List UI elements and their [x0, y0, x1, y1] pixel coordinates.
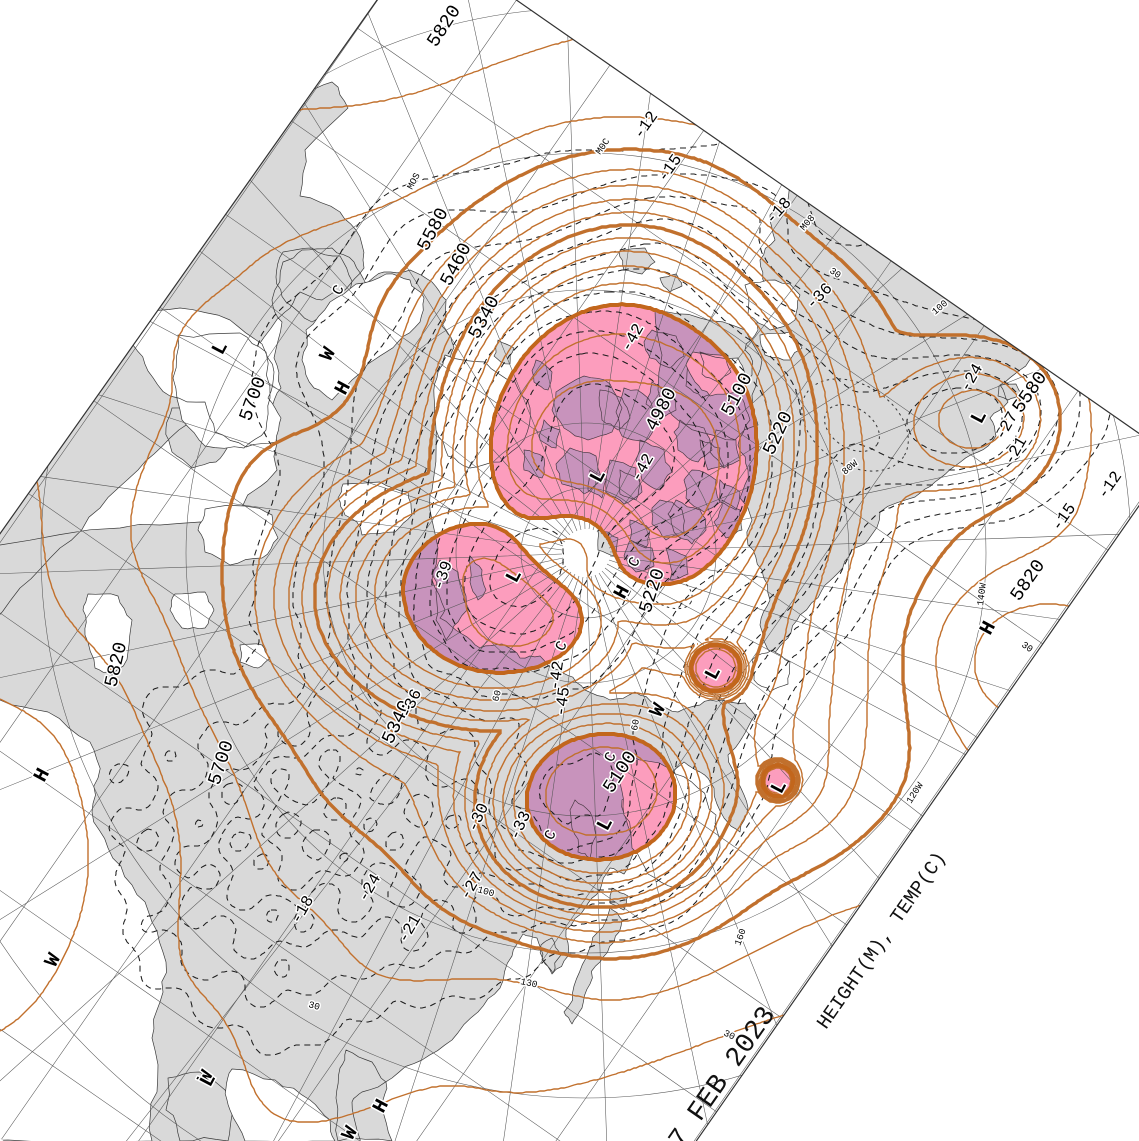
svg-text:60: 60 — [629, 718, 642, 731]
